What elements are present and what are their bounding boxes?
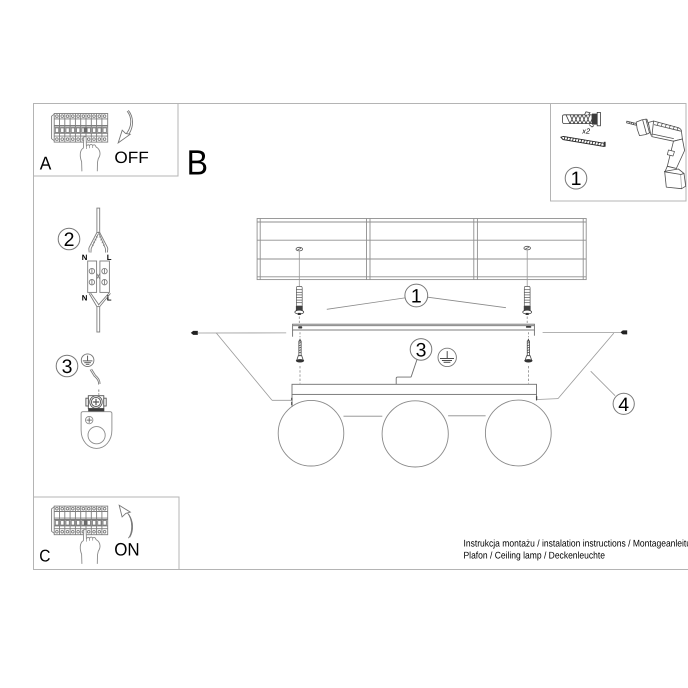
svg-text:C: C	[39, 547, 50, 566]
svg-text:4: 4	[618, 394, 629, 416]
svg-text:ON: ON	[114, 540, 139, 560]
svg-text:Instrukcja montażu / instalati: Instrukcja montażu / instalation instruc…	[464, 539, 688, 550]
svg-text:N: N	[82, 253, 88, 262]
svg-text:N: N	[82, 294, 88, 303]
svg-text:OFF: OFF	[114, 149, 148, 167]
svg-text:A: A	[40, 153, 52, 174]
svg-text:3: 3	[62, 356, 73, 378]
svg-text:1: 1	[571, 168, 582, 190]
svg-text:1: 1	[411, 286, 422, 308]
svg-text:3: 3	[416, 339, 427, 361]
svg-text:2: 2	[64, 229, 75, 251]
svg-text:B: B	[187, 144, 208, 183]
svg-text:Plafon / Ceiling lamp / Decken: Plafon / Ceiling lamp / Deckenleuchte	[464, 550, 606, 561]
svg-text:x2: x2	[581, 127, 590, 136]
